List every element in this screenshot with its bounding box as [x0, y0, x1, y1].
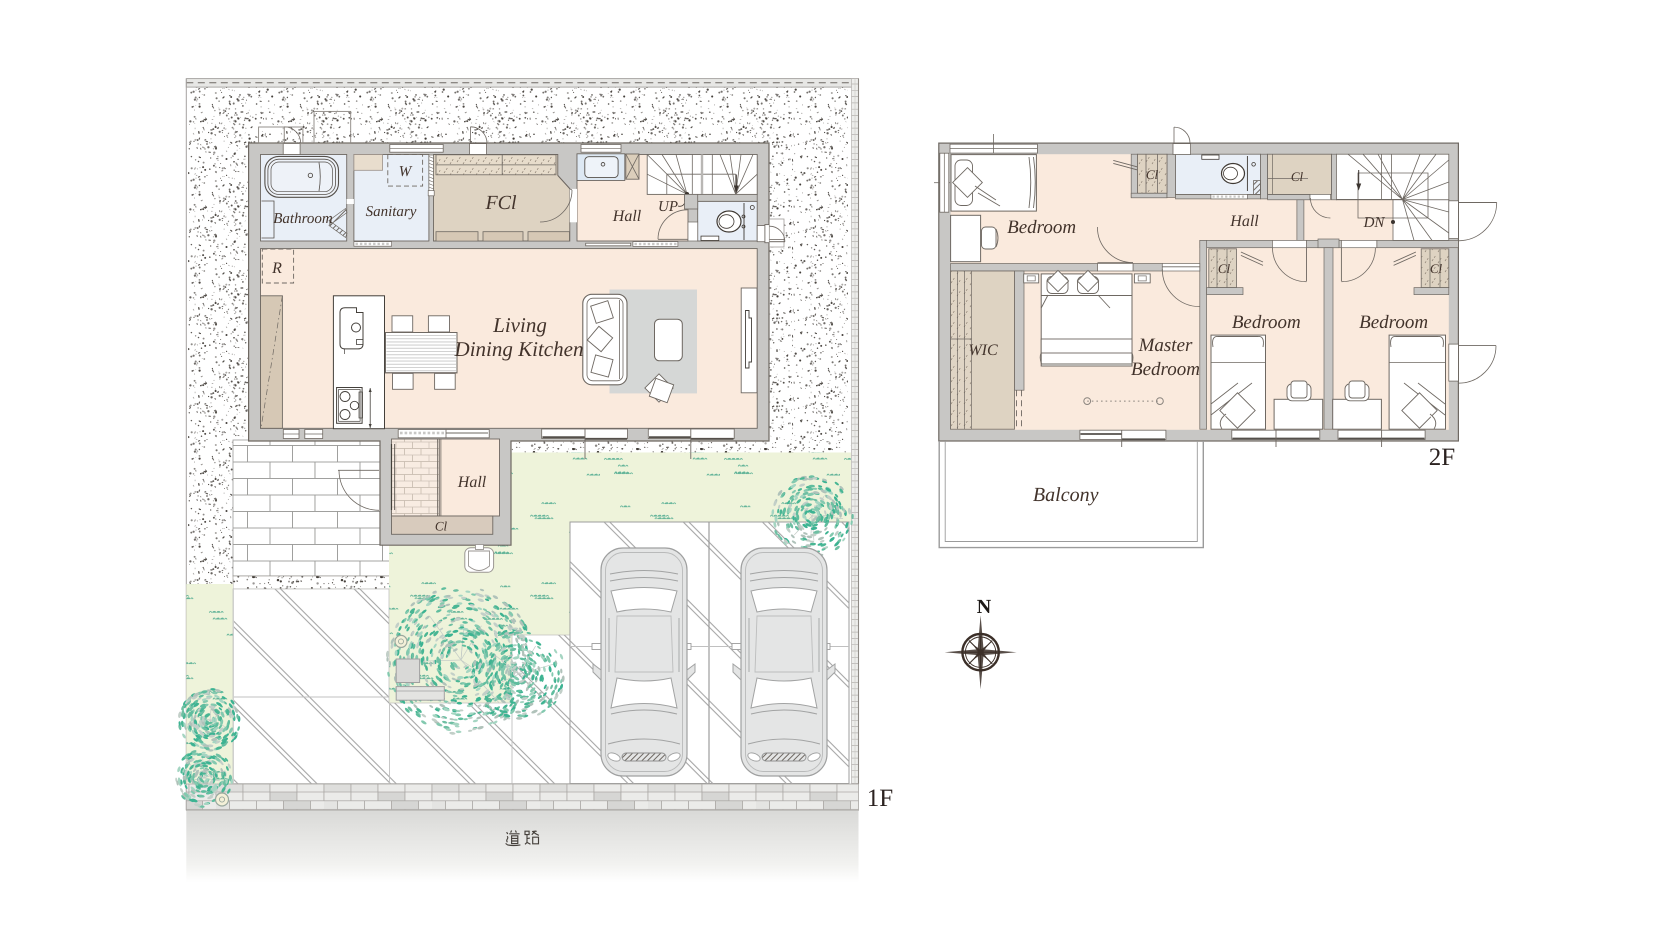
svg-text:DN: DN [1363, 215, 1386, 231]
svg-text:Bedroom: Bedroom [1359, 312, 1428, 333]
svg-text:Balcony: Balcony [1033, 484, 1099, 506]
svg-text:Cl: Cl [1146, 167, 1159, 182]
svg-text:R: R [271, 260, 282, 277]
svg-text:W: W [399, 164, 413, 180]
svg-text:WIC: WIC [968, 342, 998, 359]
svg-text:FCl: FCl [484, 192, 517, 214]
svg-text:Bathroom: Bathroom [273, 211, 333, 227]
svg-text:Dining Kitchen: Dining Kitchen [454, 337, 584, 361]
svg-text:Master: Master [1138, 335, 1193, 356]
svg-text:Hall: Hall [612, 208, 642, 225]
svg-text:Cl: Cl [1291, 169, 1304, 184]
svg-text:Cl: Cl [1218, 261, 1231, 276]
svg-text:Bedroom: Bedroom [1007, 217, 1076, 238]
svg-text:N: N [977, 596, 992, 618]
svg-text:Cl: Cl [1430, 261, 1443, 276]
svg-text:Bedroom: Bedroom [1131, 359, 1200, 380]
svg-text:Living: Living [492, 313, 547, 337]
svg-text:1F: 1F [867, 785, 893, 812]
svg-text:2F: 2F [1429, 444, 1455, 471]
svg-text:Bedroom: Bedroom [1232, 312, 1301, 333]
svg-text:Hall: Hall [457, 474, 487, 491]
svg-text:Hall: Hall [1229, 213, 1259, 230]
svg-text:Sanitary: Sanitary [366, 204, 417, 220]
svg-text:Cl: Cl [435, 519, 448, 534]
